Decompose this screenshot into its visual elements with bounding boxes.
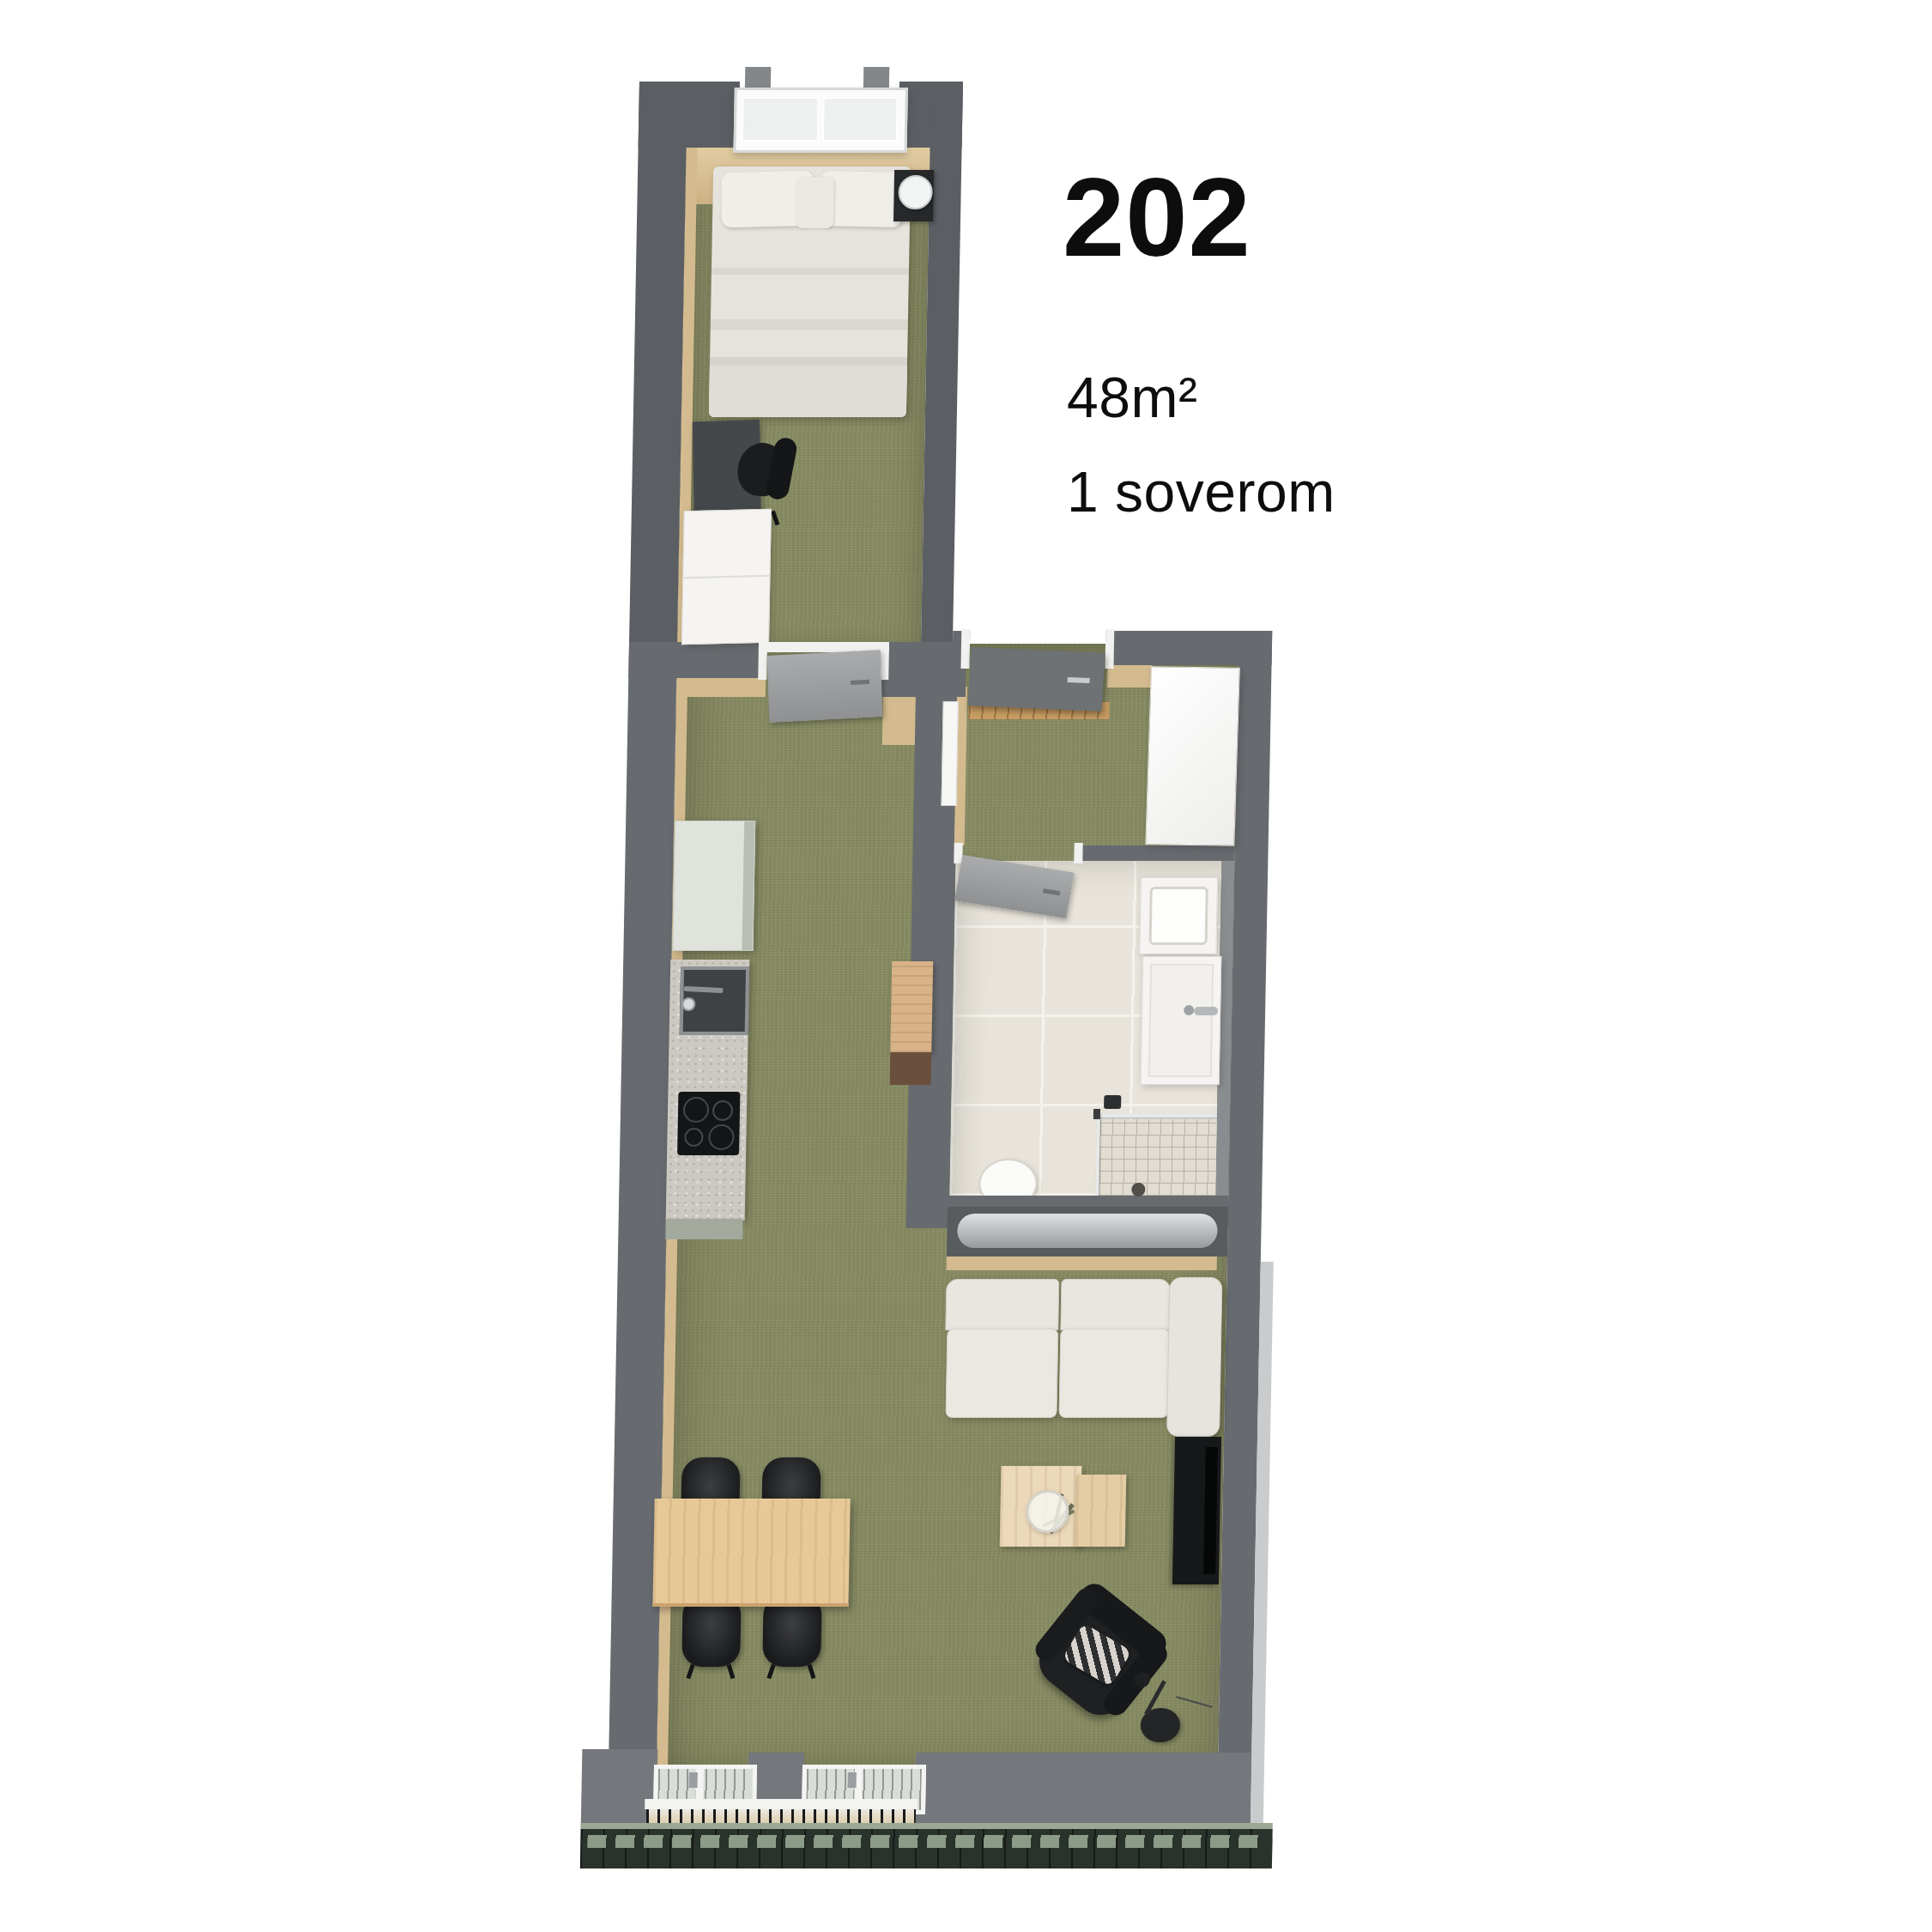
- bedroom-door: [767, 650, 883, 723]
- shower-glass: [1097, 1114, 1217, 1117]
- cooktop: [677, 1092, 740, 1155]
- radiator-niche: [947, 1207, 1228, 1257]
- sofa-back-cushion: [945, 1279, 1059, 1330]
- kitchen-counter: [666, 960, 750, 1220]
- floor-plan: [0, 0, 1932, 1932]
- wardrobe: [1145, 666, 1240, 845]
- desk-chair: [736, 438, 797, 517]
- window-pane: [822, 97, 899, 142]
- facade-trim: [581, 1823, 1273, 1829]
- duvet-edge: [709, 366, 907, 417]
- duvet-fold: [712, 268, 909, 275]
- window-jamb-icon: [745, 67, 771, 89]
- burner-icon: [684, 1128, 703, 1147]
- sink-basin: [1148, 964, 1214, 1077]
- console-cabinet-base: [890, 1052, 932, 1085]
- sofa-seat-cushion: [945, 1329, 1058, 1418]
- window-handle-icon: [848, 1772, 857, 1788]
- console-cabinet: [890, 961, 933, 1052]
- floor-plan-page: 202 48m² 1 soverom: [0, 0, 1932, 1932]
- entry-door-jamb: [960, 629, 970, 669]
- duvet-fold: [710, 357, 907, 366]
- facade-tile-row: [587, 1835, 1265, 1848]
- corridor-wall-face: [676, 678, 766, 697]
- bedroom-top-wall-left: [639, 82, 740, 148]
- bedroom-window: [733, 88, 907, 153]
- burner-icon: [708, 1124, 735, 1150]
- kitchen-tall-cabinet: [672, 821, 755, 951]
- burner-icon: [712, 1100, 733, 1121]
- dresser: [681, 509, 772, 645]
- faucet-icon: [1194, 1007, 1218, 1015]
- dining-table: [652, 1499, 850, 1607]
- washing-machine: [1139, 877, 1218, 954]
- bedroom-door-jamb: [880, 642, 889, 680]
- shower-floor: [1099, 1119, 1217, 1196]
- hall-radiator: [942, 701, 959, 806]
- facade-cladding: [580, 1829, 1273, 1868]
- tv-console: [1172, 1437, 1221, 1584]
- small-pillow: [796, 177, 834, 228]
- coffee-table-small: [1075, 1475, 1127, 1547]
- double-bed: [709, 167, 911, 417]
- cabinet-side: [742, 821, 754, 950]
- bathroom-top-wall-right: [1077, 845, 1234, 861]
- window-handle-icon: [689, 1772, 698, 1788]
- burner-icon: [683, 1097, 710, 1123]
- window-jamb-icon: [863, 67, 889, 89]
- door-handle-icon: [851, 680, 869, 685]
- door-handle-icon: [1043, 888, 1061, 895]
- shower-valve-icon: [1093, 1109, 1100, 1119]
- duvet-fold: [711, 319, 908, 330]
- bedroom-door-jamb: [758, 642, 767, 680]
- shower-head-icon: [1104, 1095, 1121, 1109]
- door-handle-icon: [1067, 677, 1089, 683]
- sofa-seat-cushion: [1058, 1329, 1170, 1418]
- window-pane: [742, 97, 820, 142]
- bathroom-door-jamb: [1074, 843, 1082, 863]
- entry-door: [968, 647, 1105, 712]
- sofa-back-cushion: [1060, 1279, 1171, 1330]
- window-sill: [645, 1799, 918, 1809]
- sofa-armrest: [1166, 1277, 1222, 1437]
- entry-wall-face: [1107, 665, 1152, 687]
- bathroom-vanity: [1141, 956, 1222, 1085]
- tv-screen: [1203, 1447, 1218, 1574]
- washer-lid: [1149, 887, 1208, 945]
- radiator: [957, 1214, 1218, 1248]
- entry-door-jamb: [1105, 629, 1114, 669]
- dresser-seam: [683, 575, 769, 579]
- sofa-wall-face: [947, 1255, 1217, 1270]
- counter-end-panel: [665, 1219, 742, 1239]
